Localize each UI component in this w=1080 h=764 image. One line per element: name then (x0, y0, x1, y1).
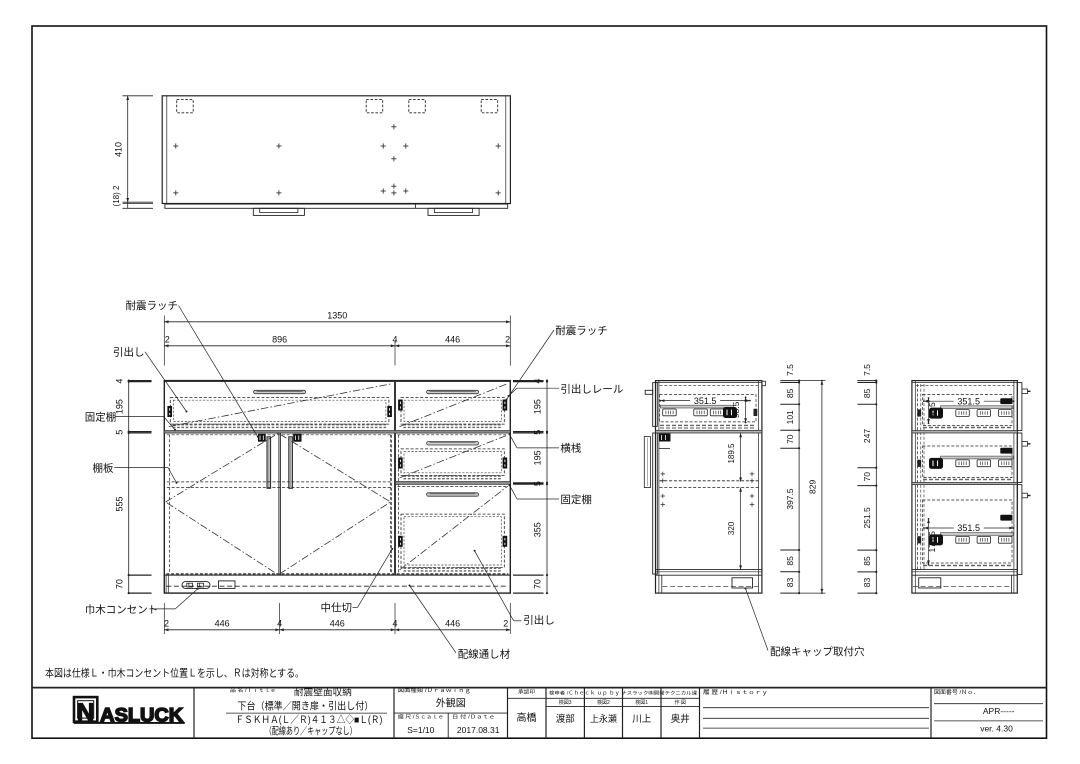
svg-text:98.5: 98.5 (927, 402, 937, 419)
svg-text:2017.08.31: 2017.08.31 (457, 725, 500, 735)
svg-text:APR-----: APR----- (983, 706, 1015, 716)
svg-text:棚板: 棚板 (93, 461, 114, 474)
svg-text:251.5: 251.5 (862, 507, 872, 529)
svg-text:410: 410 (114, 142, 124, 157)
svg-text:N: N (77, 699, 94, 726)
svg-text:（配線あり／キャップなし）: （配線あり／キャップなし） (265, 725, 357, 738)
svg-text:4: 4 (533, 379, 543, 384)
svg-text:1350: 1350 (327, 311, 347, 321)
svg-text:承認印: 承認印 (518, 688, 535, 695)
svg-text:2: 2 (164, 618, 169, 628)
svg-text:4: 4 (392, 618, 397, 628)
svg-text:図面種類 /Ｄｒａｗｉｎｇ: 図面種類 /Ｄｒａｗｉｎｇ (398, 686, 471, 694)
svg-text:作 図: 作 図 (675, 699, 686, 706)
svg-text:5: 5 (114, 430, 124, 435)
svg-text:4: 4 (277, 618, 282, 628)
svg-text:178.5: 178.5 (927, 531, 937, 553)
svg-text:189.5: 189.5 (727, 443, 736, 464)
svg-text:2: 2 (505, 335, 510, 345)
svg-text:320: 320 (727, 521, 736, 535)
svg-text:中仕切: 中仕切 (321, 601, 353, 614)
svg-text:247: 247 (862, 429, 872, 443)
svg-text:図面番号 /Ｎｏ．: 図面番号 /Ｎｏ． (934, 689, 979, 696)
svg-text:ＦＳＫＨＡ(Ｌ／Ｒ)４１３△◇■Ｌ(Ｒ): ＦＳＫＨＡ(Ｌ／Ｒ)４１３△◇■Ｌ(Ｒ) (235, 714, 382, 726)
svg-text:4: 4 (392, 335, 397, 345)
svg-text:7.5: 7.5 (785, 364, 795, 376)
svg-text:引出しレール: 引出しレール (560, 382, 623, 395)
svg-text:355: 355 (533, 522, 543, 537)
svg-text:98.5: 98.5 (731, 401, 741, 418)
svg-text:85: 85 (785, 556, 795, 566)
svg-text:巾木コンセント: 巾木コンセント (85, 603, 159, 616)
svg-text:品 名 /Ｔｉｔｌｅ: 品 名 /Ｔｉｔｌｅ (230, 686, 276, 694)
svg-text:日 付 /Ｄａｔｅ: 日 付 /Ｄａｔｅ (452, 713, 495, 720)
svg-text:検図1: 検図1 (635, 699, 648, 706)
svg-text:耐震ラッチ: 耐震ラッチ (126, 299, 179, 312)
svg-text:外観図: 外観図 (436, 697, 466, 710)
svg-text:555: 555 (114, 496, 124, 511)
svg-text:2: 2 (503, 618, 508, 628)
svg-text:引出し: 引出し (523, 614, 555, 627)
svg-text:85: 85 (785, 388, 795, 398)
svg-text:5: 5 (533, 481, 543, 486)
svg-text:7.5: 7.5 (862, 364, 872, 376)
svg-text:4: 4 (114, 379, 124, 384)
svg-text:195: 195 (533, 399, 543, 414)
svg-text:固定棚: 固定棚 (85, 410, 117, 423)
svg-text:縮 尺 /Ｓｃａｌｅ: 縮 尺 /Ｓｃａｌｅ (398, 713, 444, 720)
svg-text:829: 829 (808, 480, 818, 494)
svg-text:446: 446 (445, 335, 460, 345)
svg-text:検申者 /Ｃｈｅｃｋ ｕｐ ｂｙ ナスラック㈱開発テクニカル: 検申者 /Ｃｈｅｃｋ ｕｐ ｂｙ ナスラック㈱開発テクニカル課 (549, 690, 697, 697)
svg-text:上永瀬: 上永瀬 (590, 713, 617, 724)
svg-text:S=1/10: S=1/10 (407, 725, 434, 735)
svg-text:85: 85 (862, 388, 872, 398)
svg-text:(18) 2: (18) 2 (112, 185, 121, 206)
svg-text:引出し: 引出し (113, 345, 145, 358)
svg-text:397.5: 397.5 (785, 488, 795, 510)
svg-text:履 歴 /Ｈｉｓｔｏｒｙ: 履 歴 /Ｈｉｓｔｏｒｙ (703, 689, 768, 696)
svg-text:本図は仕様Ｌ・巾木コンセント位置Ｌを示し、Ｒは対称とする。: 本図は仕様Ｌ・巾木コンセント位置Ｌを示し、Ｒは対称とする。 (45, 667, 304, 680)
svg-text:5: 5 (533, 430, 543, 435)
svg-text:川上: 川上 (632, 714, 652, 725)
svg-text:高橋: 高橋 (517, 711, 537, 724)
svg-text:351.5: 351.5 (694, 396, 717, 406)
svg-text:446: 446 (215, 618, 230, 628)
svg-text:下台（標準／開き扉・引出し付）: 下台（標準／開き扉・引出し付） (237, 700, 373, 713)
svg-text:70: 70 (533, 579, 543, 589)
svg-text:70: 70 (862, 472, 872, 482)
svg-text:配線通し材: 配線通し材 (458, 647, 511, 660)
svg-text:横桟: 横桟 (560, 442, 581, 455)
svg-text:85: 85 (862, 556, 872, 566)
svg-text:奥井: 奥井 (671, 713, 690, 725)
svg-text:351.5: 351.5 (957, 523, 980, 533)
svg-text:446: 446 (330, 618, 345, 628)
svg-text:351.5: 351.5 (957, 396, 980, 406)
svg-text:83: 83 (862, 578, 872, 588)
svg-text:固定棚: 固定棚 (560, 493, 592, 506)
svg-text:検図3: 検図3 (559, 699, 572, 706)
svg-text:耐震壁面収納: 耐震壁面収納 (294, 687, 352, 699)
svg-text:ver. 4.30: ver. 4.30 (980, 724, 1013, 734)
svg-text:70: 70 (114, 579, 124, 589)
svg-text:83: 83 (785, 578, 795, 588)
svg-text:101: 101 (785, 410, 795, 424)
svg-text:896: 896 (272, 335, 287, 345)
svg-text:渡部: 渡部 (556, 713, 575, 725)
svg-text:耐震ラッチ: 耐震ラッチ (555, 324, 608, 337)
svg-text:2: 2 (165, 335, 170, 345)
svg-text:446: 446 (445, 618, 460, 628)
svg-text:配線キャップ取付穴: 配線キャップ取付穴 (770, 645, 865, 658)
svg-text:70: 70 (785, 434, 795, 444)
svg-text:195: 195 (533, 450, 543, 465)
svg-text:検図2: 検図2 (597, 699, 610, 706)
